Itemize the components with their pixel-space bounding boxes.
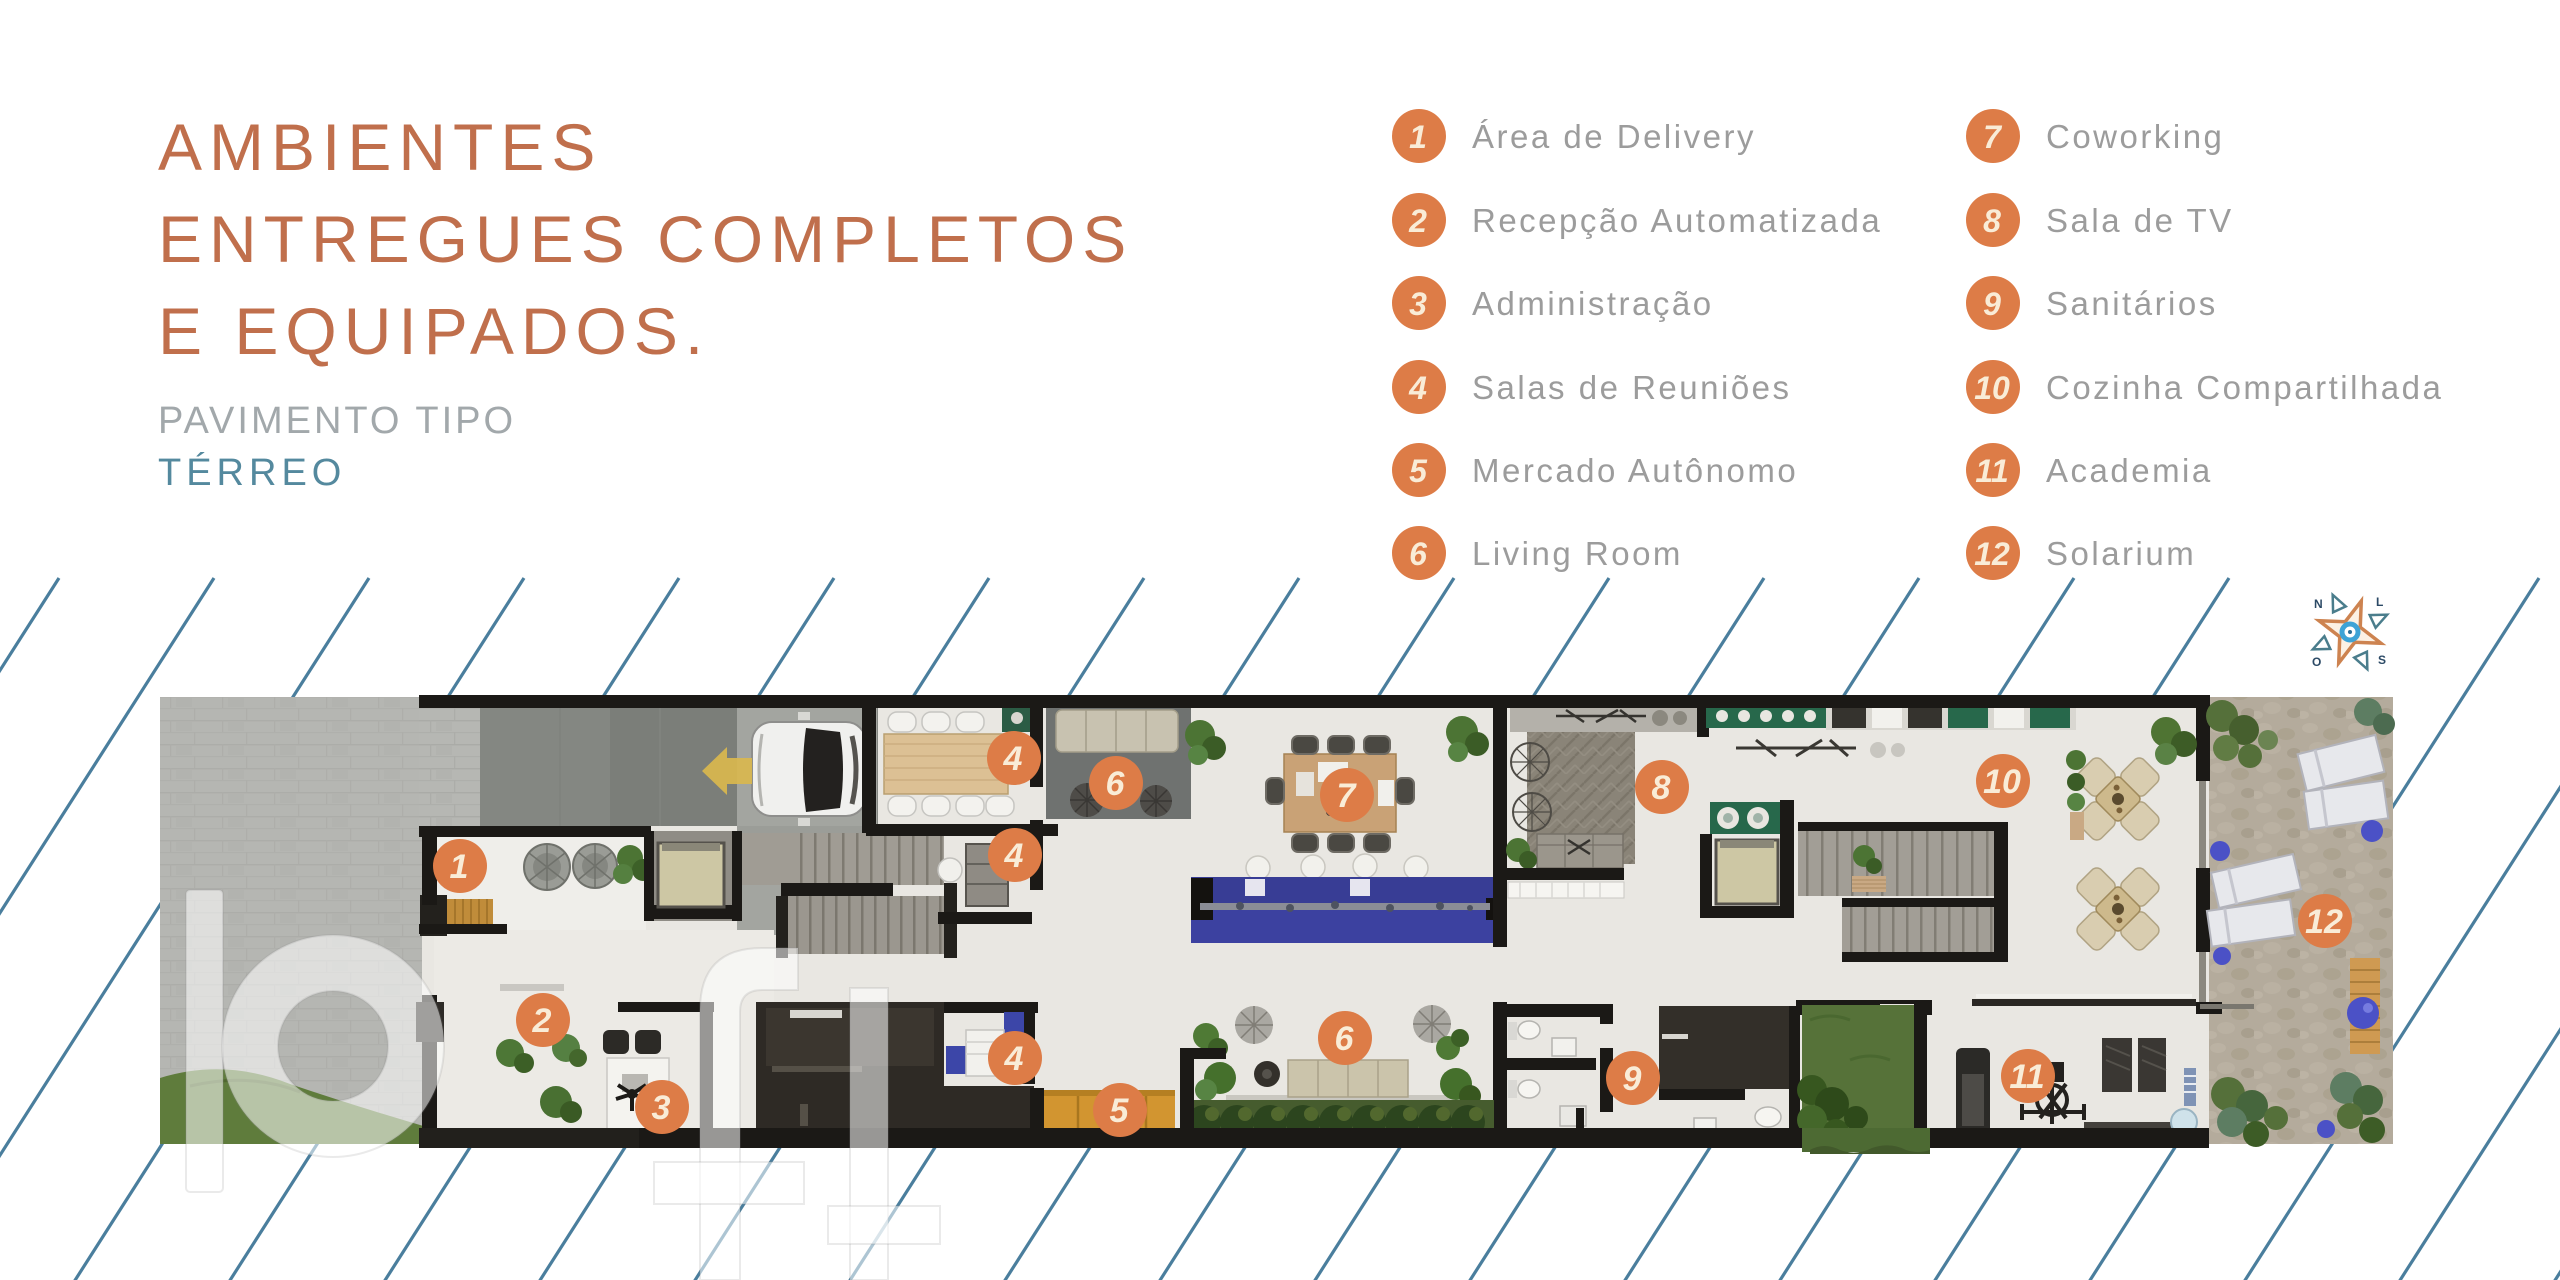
svg-text:2: 2: [532, 1002, 552, 1040]
svg-text:9: 9: [1623, 1060, 1642, 1098]
svg-text:5: 5: [1110, 1092, 1130, 1130]
svg-text:4: 4: [1004, 837, 1024, 875]
svg-text:3: 3: [652, 1089, 671, 1127]
svg-text:O: O: [2312, 655, 2321, 669]
svg-text:7: 7: [1983, 119, 2003, 155]
svg-text:6: 6: [1335, 1020, 1355, 1058]
svg-text:6: 6: [1106, 765, 1126, 803]
svg-text:11: 11: [1975, 453, 2008, 489]
svg-text:8: 8: [1652, 769, 1671, 807]
svg-text:12: 12: [2305, 903, 2343, 941]
svg-text:S: S: [2378, 653, 2386, 667]
svg-text:E EQUIPADOS.: E EQUIPADOS.: [158, 294, 710, 368]
svg-text:L: L: [2376, 595, 2383, 609]
svg-text:4: 4: [1408, 370, 1427, 406]
svg-text:10: 10: [1974, 370, 2010, 406]
svg-text:4: 4: [1003, 740, 1023, 778]
svg-text:6: 6: [1409, 536, 1427, 572]
svg-text:Administração: Administração: [1472, 285, 1714, 322]
svg-text:3: 3: [1409, 286, 1427, 322]
svg-text:5: 5: [1409, 453, 1428, 489]
svg-text:1: 1: [1409, 119, 1427, 155]
svg-text:Sala de TV: Sala de TV: [2046, 202, 2234, 239]
svg-text:Salas de Reuniões: Salas de Reuniões: [1472, 369, 1792, 406]
svg-text:Solarium: Solarium: [2046, 535, 2196, 572]
svg-text:Academia: Academia: [2046, 452, 2213, 489]
svg-text:11: 11: [2009, 1058, 2044, 1096]
svg-text:AMBIENTES: AMBIENTES: [158, 110, 602, 184]
svg-text:TÉRREO: TÉRREO: [158, 451, 346, 494]
svg-text:12: 12: [1974, 536, 2010, 572]
svg-text:10: 10: [1983, 763, 2021, 801]
svg-text:Área de Delivery: Área de Delivery: [1472, 118, 1756, 155]
svg-text:Mercado Autônomo: Mercado Autônomo: [1472, 452, 1798, 489]
svg-text:1: 1: [450, 848, 469, 886]
svg-text:Recepção Automatizada: Recepção Automatizada: [1472, 202, 1882, 239]
svg-text:Cozinha Compartilhada: Cozinha Compartilhada: [2046, 369, 2443, 406]
svg-text:7: 7: [1337, 777, 1358, 815]
svg-text:8: 8: [1983, 203, 2001, 239]
svg-text:PAVIMENTO TIPO: PAVIMENTO TIPO: [158, 400, 516, 442]
svg-text:Sanitários: Sanitários: [2046, 285, 2218, 322]
svg-text:4: 4: [1004, 1040, 1024, 1078]
svg-text:ENTREGUES COMPLETOS: ENTREGUES COMPLETOS: [158, 202, 1133, 276]
svg-text:Coworking: Coworking: [2046, 118, 2224, 155]
svg-text:N: N: [2314, 597, 2323, 611]
svg-text:Living Room: Living Room: [1472, 535, 1683, 572]
svg-text:2: 2: [1408, 203, 1427, 239]
svg-text:9: 9: [1983, 286, 2001, 322]
